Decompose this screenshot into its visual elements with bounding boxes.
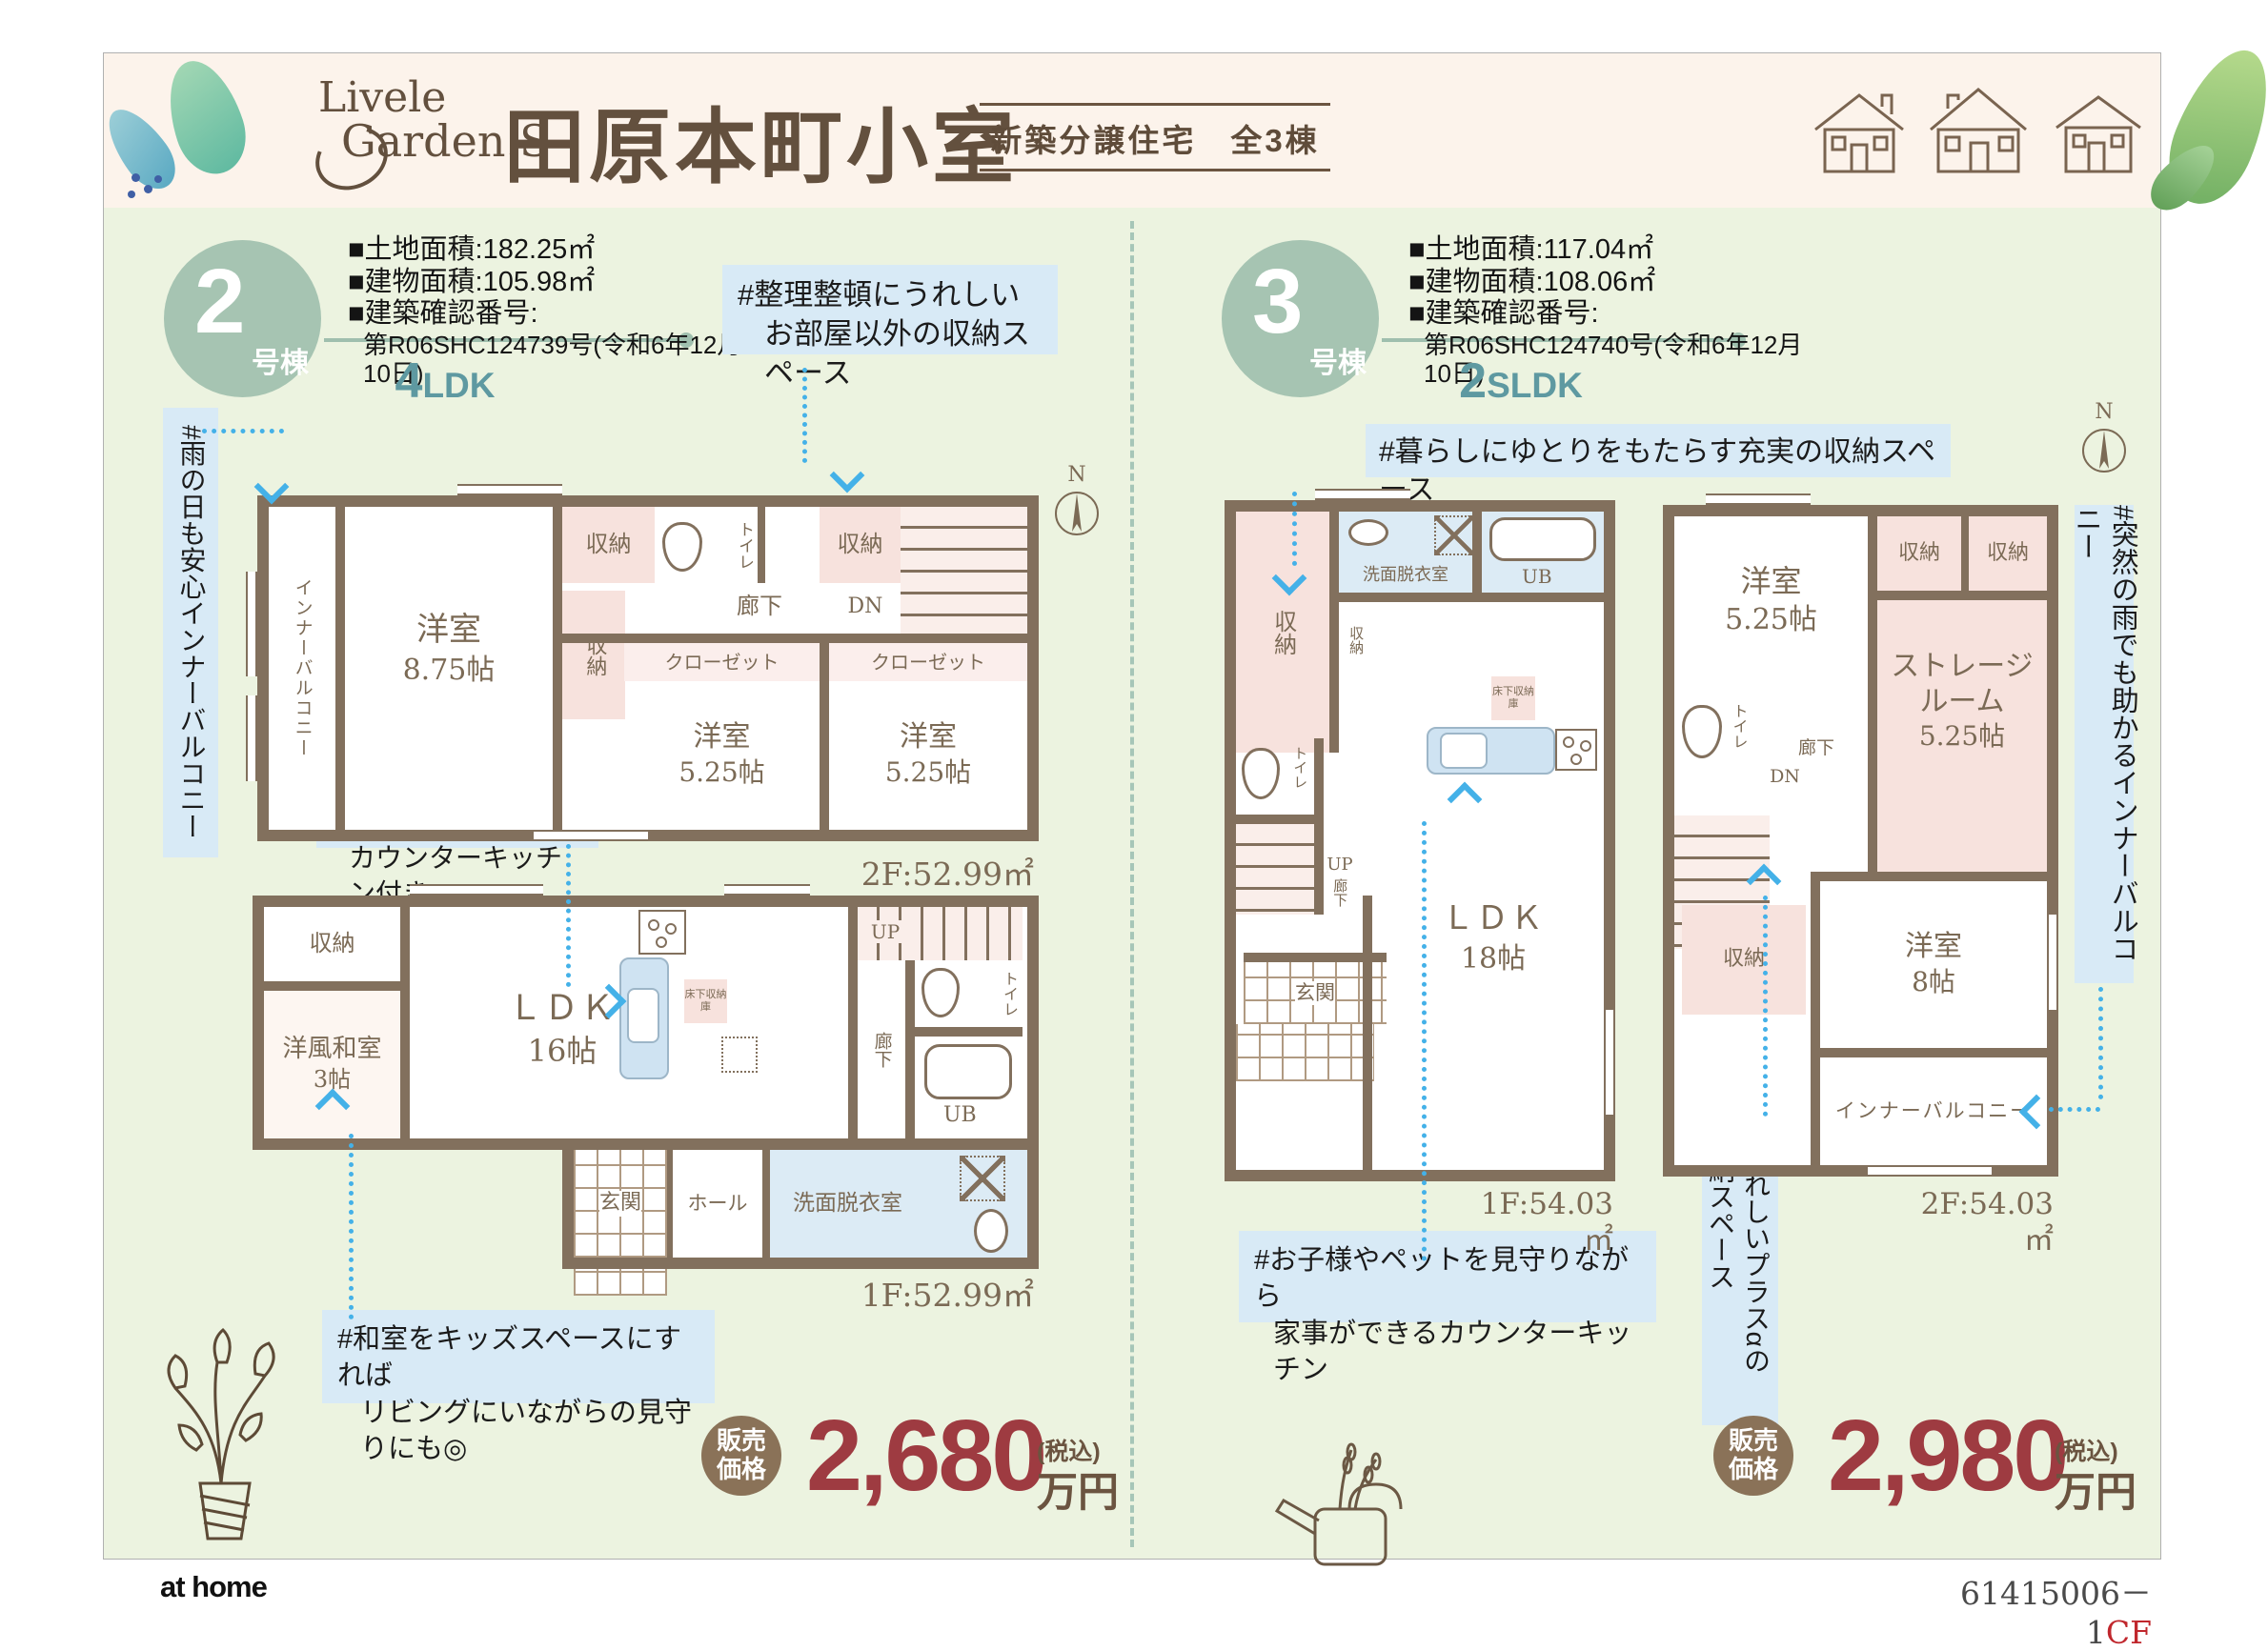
b2f1-porch [574,1269,667,1296]
building3-spec-land: ■土地面積:117.04㎡ [1408,234,1818,267]
room-label: 洋室8.75帖 [403,611,496,690]
room-label: クローゼット [665,651,780,674]
b2f1-bath: UB [915,1037,1023,1138]
window [1706,493,1811,505]
building2-badge-suffix: 号棟 [252,339,309,381]
b3-floorplan-1f: 収納 洗面脱衣室 UB 収納 床下収納庫 トイレ UP 廊下 玄関 ＬＤＫ18帖 [1225,500,1615,1181]
compass-n-label: N [1048,463,1105,489]
building3-badge-number: 3 [1252,250,1303,354]
b2-1f-area-label: 1F:52.99㎡ [820,1277,1034,1315]
b2-tag-kids-line2: リビングにいながらの見守りにも◎ [337,1395,699,1468]
toilet-icon [1242,748,1280,799]
b3-tag-storage: #暮らしにゆとりをもたらす充実の収納スペース [1366,424,1951,477]
b3f1-up-label: UP [1320,855,1360,876]
room-label: 洋風和室3帖 [282,1035,381,1095]
house-icon [2045,84,2152,183]
b3f2-inner-balcony: インナーバルコニー [1820,1057,2047,1165]
window [534,830,648,841]
room-label: 洋室8帖 [1905,930,1962,999]
compass-icon: N [2076,400,2133,480]
b2f2-bedroom-525-left: 洋室5.25帖 [624,681,820,830]
b3f1-storage-small: 収納 [1334,602,1378,678]
b2f2-storage-top2: 収納 [820,507,901,583]
room-label: トイレ [734,521,754,570]
building3-badge-suffix: 号棟 [1309,339,1367,381]
b3-tag-balcony: #突然の雨でも助かるインナーバルコニー [2075,505,2134,983]
room-label: UB [943,1103,977,1129]
b3-price-unit: 万円 [2055,1460,2136,1519]
b2-price-amount: 2,680 [806,1399,1035,1515]
b3-2f-area-label: 2F:54.03㎡ [1906,1187,2054,1259]
arrow-dotted-line [1422,821,1427,1261]
sink-icon [1348,519,1388,546]
b2f2-bedroom-525-right: 洋室5.25帖 [829,681,1027,830]
b2-price-unit: 万円 [1037,1460,1119,1519]
window [1604,1010,1615,1115]
arrow-dotted-line [1292,492,1297,566]
window [410,884,543,896]
room-label: 洗面脱衣室 [1339,565,1472,586]
leaf-decoration-left-icon [112,57,284,205]
b3f2-storage2: 収納 [1969,516,2047,591]
kitchen-sink-icon [627,988,659,1043]
b3f2-hall-label: 廊下 [1787,737,1846,759]
room-label: 収納 [310,930,355,957]
compass-icon: N [1048,463,1105,543]
b3f2-storage1: 収納 [1877,516,1961,591]
price-badge-line2: 価格 [1729,1456,1778,1484]
b3f2-bedroom-8: 洋室8帖 [1820,881,2047,1048]
price-badge-line1: 販売 [717,1427,766,1456]
b3f1-porch [1236,1024,1374,1081]
room-label: 洗面脱衣室 [793,1190,902,1217]
b3f1-bath: UB [1482,512,1604,593]
toilet-icon [1682,705,1722,758]
b2f2-closet1: クローゼット [624,643,820,681]
building2-spec-building: ■建物面積:105.98㎡ [348,267,758,299]
room-label: 床下収納庫 [1491,686,1535,710]
building2-spec-land: ■土地面積:182.25㎡ [348,234,758,267]
document-code-suffix: CF [2106,1614,2152,1651]
b3f1-stairs [1236,824,1314,915]
window [1315,489,1410,500]
window [246,695,257,781]
arrow-dotted-line [1763,896,1768,1117]
building2-plan-type-number: 4 [395,353,423,409]
building2-plan-type: 4LDK [354,352,536,410]
room-label: 洋室5.25帖 [1725,563,1817,638]
arrow-dotted-line [802,368,807,463]
b3-floorplan-2f: 洋室5.25帖 収納 収納 ストレージルーム5.25帖 トイレ 廊下 DN 収納… [1663,505,2058,1177]
b3-1f-area-label: 1F:54.03㎡ [1468,1187,1613,1259]
b2f2-storage-top1: 収納 [562,507,655,583]
b2-tag-kids: #和室をキッズスペースにすれば リビングにいながらの見守りにも◎ [322,1310,715,1403]
plant-icon [154,1307,288,1550]
b3f2-toilet: トイレ [1674,694,1755,815]
b3f1-storage-big: 収納 [1236,512,1329,753]
b2-tag-balcony: #雨の日も安心インナーバルコニー [163,408,218,857]
building2-spec-confirm: ■建築確認番号: [348,298,758,331]
room-label: 収納 [838,531,883,558]
arrow-dotted-line [2098,987,2103,1099]
room-label: ＬＤＫ18帖 [1431,899,1555,978]
b2f2-stairs [901,507,1027,634]
brand-logo: Livele Garden.S [313,72,532,196]
building2-plan-type-letters: LDK [422,366,495,405]
b2f1-entrance: 玄関 [574,1150,667,1258]
room-label: トイレ [1000,971,1019,1017]
page-subtitle: 新築分譲住宅 全3棟 [980,103,1330,171]
arrow-dotted-line [2049,1107,2100,1112]
b3f1-washroom: 洗面脱衣室 [1339,512,1472,593]
b3f1-hall-label: 廊下 [1331,878,1348,907]
window [246,572,257,676]
b2f2-storage-mid: 収納 [562,591,625,719]
b2-tag-storage-line1: #整理整頓にうれしい [738,276,1043,315]
house-icon [1806,84,1913,183]
b3f1-floor-storage: 床下収納庫 [1491,676,1535,720]
room-label: ホール [688,1192,748,1217]
room-label: 収納 [1987,541,2029,567]
b2-floorplan-1f: 収納 洋風和室3帖 ＬＤＫ16帖 床下収納庫 UP 廊下 トイレ UB [253,896,1039,1150]
building3-plan-type-letters: SLDK [1487,366,1583,405]
b2-tag-kids-line1: #和室をキッズスペースにすれば [337,1321,699,1395]
arrow-dotted-line [202,429,284,433]
b3f2-storage3: 収納 [1682,905,1806,1015]
tatami-corner-icon [721,1037,758,1073]
arrow-dotted-line [566,844,571,987]
arrow-dotted-line [349,1134,354,1319]
b3-price-badge: 販売 価格 [1713,1416,1793,1496]
house-icon [1923,80,2034,183]
building3-spec-building: ■建物面積:108.06㎡ [1408,267,1818,299]
window [2047,915,2058,1010]
window [1868,1165,1992,1177]
room-label: 洋室5.25帖 [678,720,764,790]
watering-can-icon [1256,1440,1447,1593]
room-label: トイレ [1730,703,1749,749]
b2f2-dn-label: DN [840,594,890,620]
b2f1-hall: 廊下 [858,960,905,1138]
room-label: 収納 [1723,947,1765,973]
building2-badge-number: 2 [194,250,245,354]
b2f1-floor-storage: 床下収納庫 [684,979,727,1023]
building3-plan-type: 2SLDK [1416,352,1626,410]
price-badge-line1: 販売 [1729,1427,1778,1456]
room-label: クローゼット [871,651,985,674]
room-label: 床下収納庫 [684,989,727,1013]
b2f2-bedroom-875: 洋室8.75帖 [345,507,553,793]
b3f2-bedroom-525: 洋室5.25帖 [1674,516,1868,684]
b2-2f-area-label: 2F:52.99㎡ [820,856,1034,894]
b3f2-dn-label: DN [1762,766,1808,788]
room-label: 収納 [1268,610,1296,655]
b2-tag-storage-line2: お部屋以外の収納スペース [738,315,1043,393]
compass-n-label: N [2076,400,2133,426]
room-label: インナーバルコニー [291,578,313,758]
b2-floorplan-1f-ext: 玄関 ホール 洗面脱衣室 [562,1138,1039,1269]
price-badge-line2: 価格 [717,1456,766,1484]
b2-tag-storage: #整理整頓にうれしい お部屋以外の収納スペース [722,265,1058,354]
b2f2-inner-balcony: インナーバルコニー [269,507,335,830]
washer-icon [1434,515,1474,555]
b2f2-hall-label: 廊下 [717,593,802,620]
b2f2-closet2: クローゼット [829,643,1027,681]
bathtub-icon [1489,517,1596,561]
b3-price-amount: 2,980 [1828,1399,2056,1515]
room-label: 玄関 [599,1191,641,1217]
window [724,884,810,896]
b3-tag-kitchen-line2: 家事ができるカウンターキッチン [1254,1316,1641,1389]
athome-logo: at home [160,1570,267,1604]
building3-badge: 3 号棟 [1222,240,1379,397]
document-code: 61415006－1CF [1906,1568,2152,1651]
b2f1-storage: 収納 [264,907,400,981]
sink-icon [974,1209,1008,1253]
b3f1-toilet: トイレ [1236,738,1314,815]
room-label: 玄関 [1295,981,1335,1006]
stove-icon [638,910,686,955]
room-label: ストレージルーム5.25帖 [1891,650,2033,755]
b3f2-storage-room: ストレージルーム5.25帖 [1877,600,2047,872]
leaf-decoration-right-icon [2163,46,2268,227]
b2f1-hall2: ホール [673,1150,762,1258]
room-label: トイレ [1291,746,1308,789]
center-divider [1130,221,1134,1547]
room-label: 洋室5.25帖 [885,720,971,790]
b3f1-ldk: ＬＤＫ18帖 [1372,896,1604,1170]
room-label: インナーバルコニー [1835,1099,2032,1124]
b2-floorplan-2f: インナーバルコニー 洋室8.75帖 収納 収納 トイレ 収納 廊下 DN クロー… [257,495,1039,841]
room-label: 収納 [1347,626,1365,654]
room-label: UB [1522,565,1552,588]
window [457,484,562,495]
bathtub-icon [924,1044,1012,1099]
page-title: 田原本町小室 [503,80,1018,199]
building2-badge: 2 号棟 [164,240,321,397]
room-label: 収納 [586,531,632,558]
b2f1-up-label: UP [864,920,906,943]
room-label: 収納 [1898,541,1940,567]
building3-plan-type-number: 2 [1459,353,1487,409]
room-label: 廊下 [870,1032,892,1068]
building3-spec-confirm: ■建築確認番号: [1408,298,1818,331]
kitchen-sink-icon [1440,733,1488,769]
stove-icon [1555,729,1597,771]
washer-icon [960,1156,1005,1201]
b2-price-badge: 販売 価格 [701,1416,781,1496]
